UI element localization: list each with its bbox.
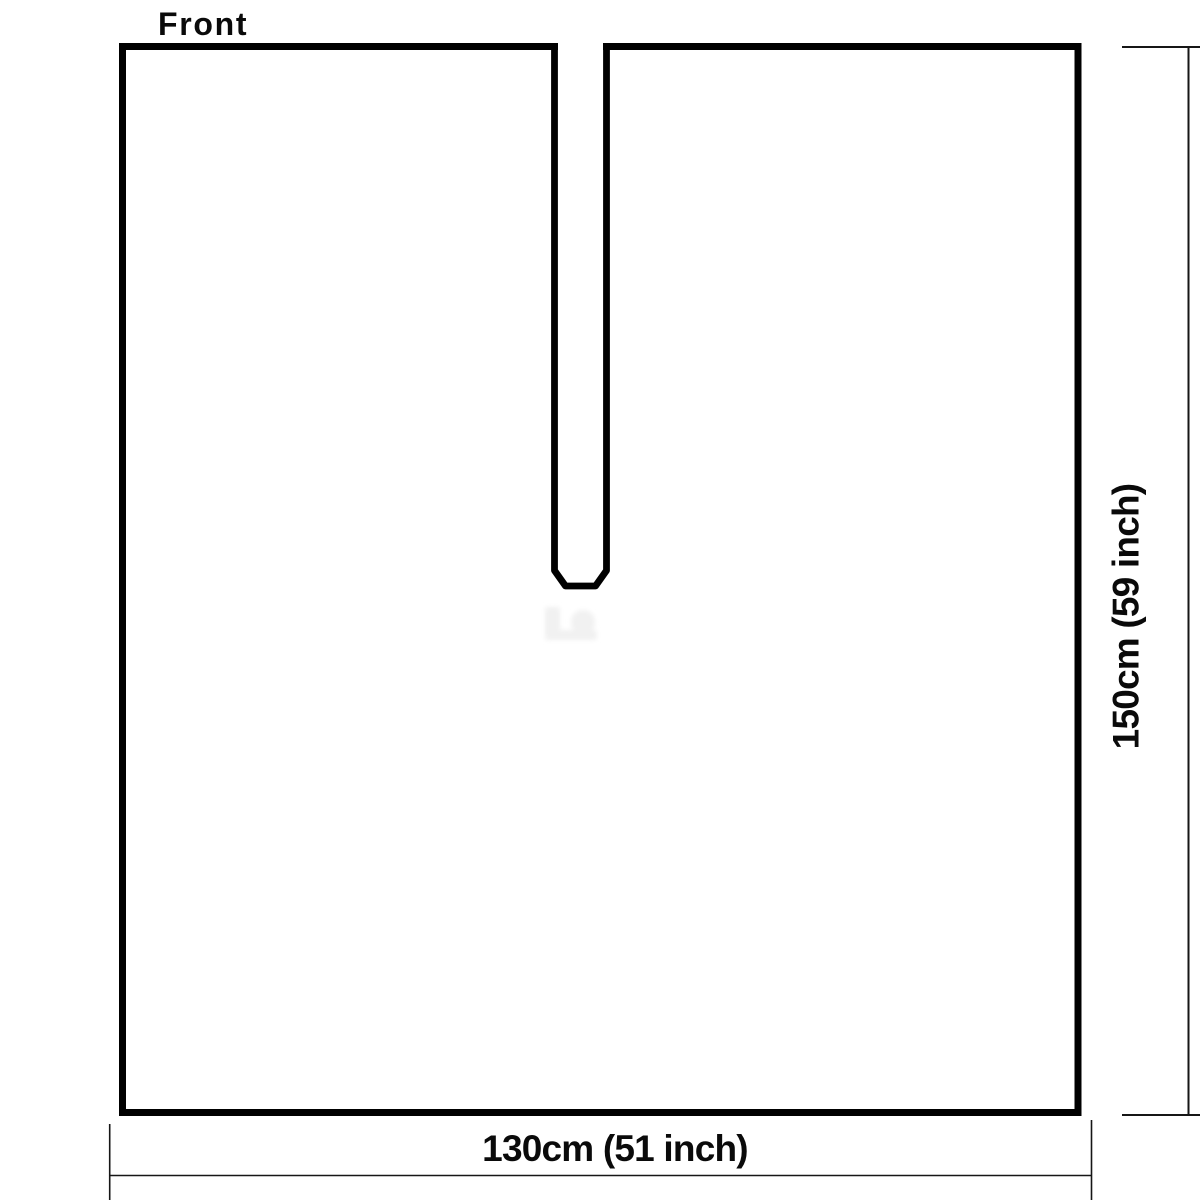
svg-text:130cm (51 inch): 130cm (51 inch) — [482, 1128, 748, 1169]
svg-text:150cm (59 inch): 150cm (59 inch) — [1106, 484, 1147, 750]
svg-text:Front: Front — [158, 6, 248, 42]
